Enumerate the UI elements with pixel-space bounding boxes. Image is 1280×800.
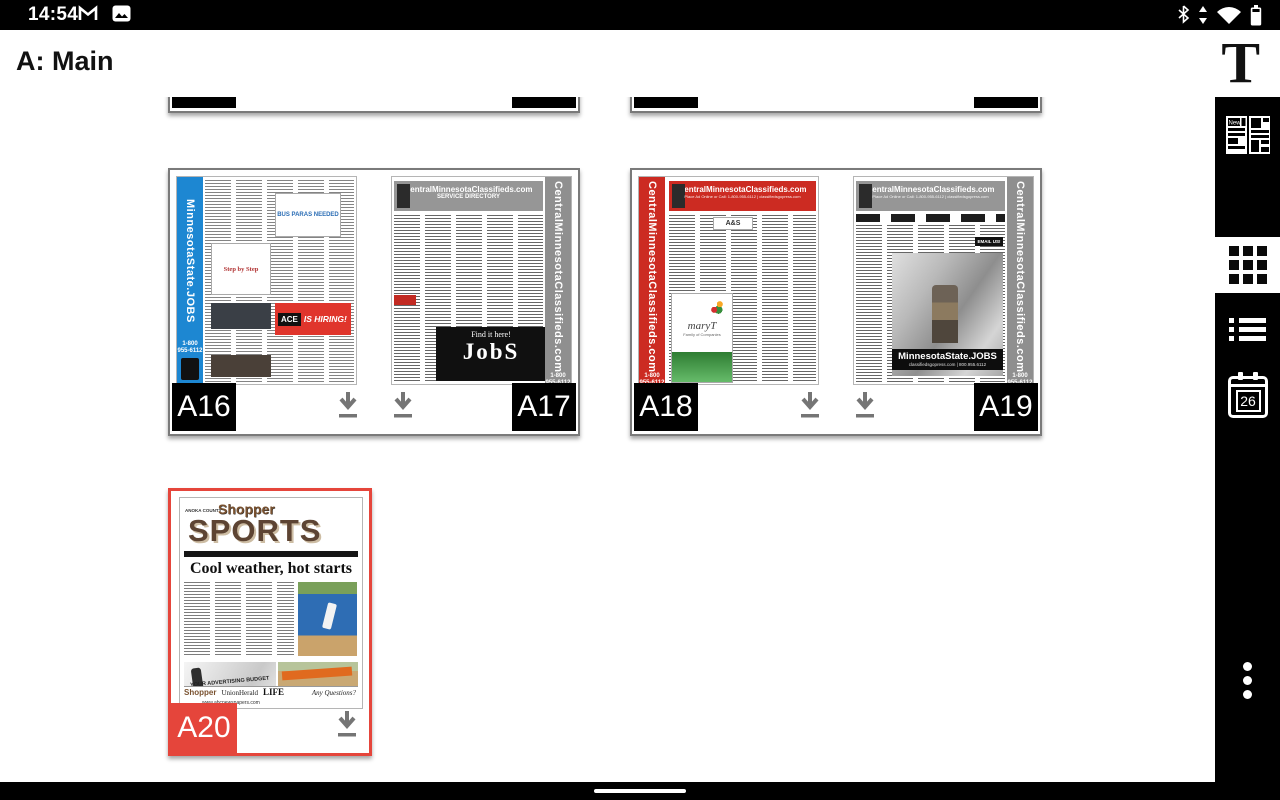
more-vert-icon (1243, 657, 1252, 704)
page-thumbnail-a20[interactable]: ANOKA COUNTY Shopper SPORTS Cool weather… (179, 497, 363, 709)
battery-icon (1250, 5, 1262, 26)
download-button[interactable] (385, 97, 421, 99)
mary-t-ad: maryT Family of Companies (671, 293, 733, 383)
section-chips (856, 214, 1005, 222)
status-bar: 14:54 (0, 0, 1280, 30)
data-transfer-icon (1198, 5, 1208, 25)
home-indicator[interactable] (594, 789, 686, 793)
publication-pages-button[interactable]: News (1215, 110, 1280, 160)
spread-card-a18-a19[interactable]: CentralMinnesotaClassifieds.com 1-800 95… (630, 168, 1042, 436)
email-us-chip: EMAIL US! (975, 237, 1003, 246)
page-title: A: Main (16, 46, 114, 77)
as-ad: A&S (713, 217, 753, 230)
orange-banner (282, 667, 352, 681)
bus-paras-ad: BUS PARAS NEEDED (275, 193, 341, 237)
green-panel (672, 352, 732, 382)
classifieds-rail: CentralMinnesotaClassifieds.com 1-800 95… (639, 177, 665, 384)
download-button[interactable] (385, 386, 421, 422)
download-button[interactable] (329, 705, 365, 741)
page-label-a12: A12 (172, 97, 236, 108)
ace-hiring-ad: ACE IS HIRING! (275, 303, 351, 335)
page-label-a20: A20 (171, 703, 237, 753)
gmail-icon (78, 5, 98, 22)
man-figure (932, 285, 958, 343)
page-label-a16: A16 (172, 383, 236, 431)
download-button[interactable] (847, 97, 883, 99)
truck-driver-photo: MinnesotaState.JOBS classifiedsgopress.c… (892, 253, 1003, 376)
truck-photo (211, 303, 271, 329)
page-thumbnail-a16[interactable]: MinnesotaState.JOBS 1-800 955-6112 BUS P… (176, 176, 357, 385)
list-view-button[interactable] (1215, 309, 1280, 349)
classifieds-header: CentralMinnesotaClassifieds.com Place Ad… (856, 181, 1005, 211)
mn-logo (397, 184, 410, 208)
download-button[interactable] (330, 386, 366, 422)
list-icon (1229, 314, 1266, 345)
page-thumbnail-a18[interactable]: CentralMinnesotaClassifieds.com 1-800 95… (638, 176, 819, 385)
player-figure (322, 602, 337, 629)
page-label-a19: A19 (974, 383, 1038, 431)
page-label-a17: A17 (512, 383, 576, 431)
download-button[interactable] (847, 386, 883, 422)
app-bar: A: Main T (0, 30, 1280, 97)
wifi-icon (1216, 5, 1242, 25)
page-label-a13: A13 (512, 97, 576, 108)
svg-text:News: News (1228, 121, 1243, 127)
gesture-bar (0, 782, 1280, 800)
download-button[interactable] (792, 97, 828, 99)
classifieds-header: CentralMinnesotaClassifieds.com SERVICE … (394, 181, 543, 211)
page-thumbnail-a19[interactable]: CentralMinnesotaClassifieds.com Place Ad… (853, 176, 1034, 385)
page-label-a14: A14 (634, 97, 698, 108)
jobs-ad: Find it here! JobS (436, 327, 546, 381)
jobs-rail: MinnesotaState.JOBS 1-800 955-6112 (177, 177, 203, 384)
page-thumbnail-a17[interactable]: CentralMinnesotaClassifieds.com SERVICE … (391, 176, 572, 385)
app-screen: 14:54 A: Main T (0, 0, 1280, 800)
newsprint-columns (184, 582, 294, 656)
spread-card-a16-a17[interactable]: MinnesotaState.JOBS 1-800 955-6112 BUS P… (168, 168, 580, 436)
download-button[interactable] (792, 386, 828, 422)
spread-card-a14-a15[interactable]: A14 A15 (630, 97, 1042, 113)
spread-card-a12-a13[interactable]: A12 A13 (168, 97, 580, 113)
jobs-banner: MinnesotaState.JOBS classifiedsgopress.c… (892, 349, 1003, 370)
newspaper-icon: News (1225, 115, 1271, 155)
clock: 14:54 (28, 4, 78, 26)
minnesota-silhouette (181, 358, 199, 380)
pages-grid: A12 A13 A14 A15 MinnesotaState.JOBS 1-80… (0, 97, 1215, 782)
selected-page-card-a20[interactable]: ANOKA COUNTY Shopper SPORTS Cool weather… (168, 488, 372, 756)
sports-section-title: SPORTS (188, 513, 321, 549)
leaf-decoration (710, 300, 724, 314)
photos-icon (112, 5, 131, 22)
classifieds-rail: CentralMinnesotaClassifieds.com 1-800 95… (1007, 177, 1033, 384)
calendar-icon: 26 (1228, 376, 1268, 418)
calendar-button[interactable]: 26 (1215, 369, 1280, 425)
masthead-rule (184, 551, 358, 557)
download-button[interactable] (330, 97, 366, 99)
page-label-a18: A18 (634, 383, 698, 431)
headline: Cool weather, hot starts (184, 560, 358, 578)
calendar-day: 26 (1236, 390, 1261, 412)
right-toolbar: News (1215, 97, 1280, 800)
red-ad-chip (394, 295, 416, 305)
step-by-step-ad: Step by Step (211, 243, 271, 295)
baseball-catch-photo (298, 582, 357, 656)
classifieds-header: CentralMinnesotaClassifieds.com Place Ad… (669, 181, 816, 211)
page-label-a15: A15 (974, 97, 1038, 108)
overflow-menu-button[interactable] (1215, 652, 1280, 708)
grid-view-button[interactable] (1215, 244, 1280, 286)
publication-logo[interactable]: T (1221, 32, 1260, 94)
bluetooth-icon (1177, 5, 1190, 25)
grid-icon (1229, 246, 1267, 284)
truck-photo (211, 355, 271, 377)
classifieds-rail: CentralMinnesotaClassifieds.com 1-800 95… (545, 177, 571, 384)
